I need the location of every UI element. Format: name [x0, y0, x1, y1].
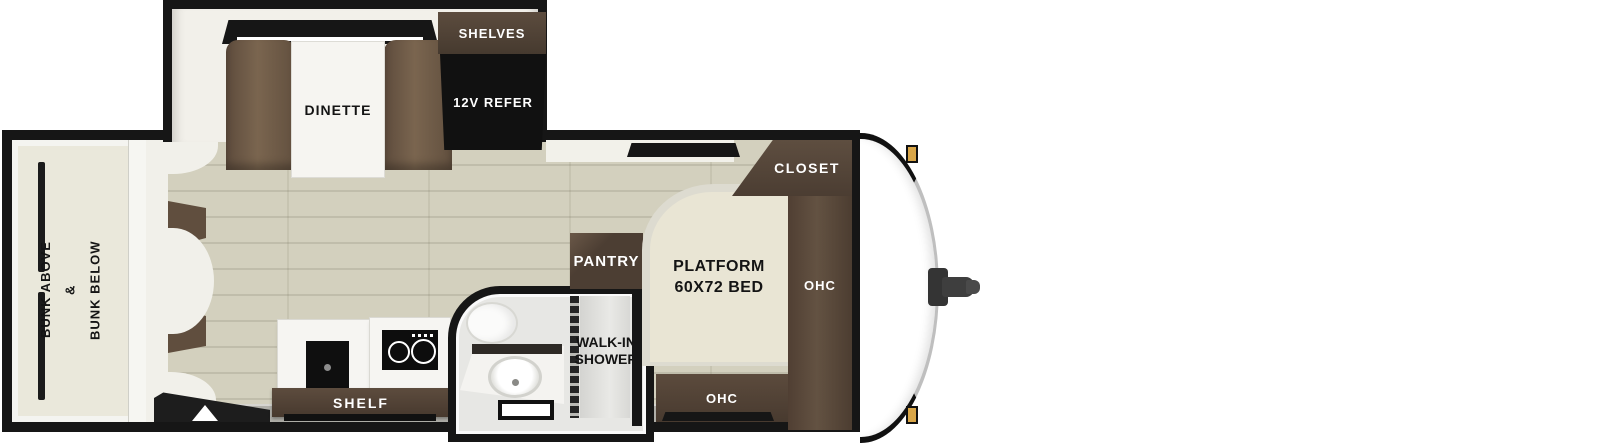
dinette-table: DINETTE [292, 42, 384, 177]
ohc-side-label: OHC [788, 278, 852, 293]
ohc-side: OHC [788, 190, 852, 430]
cooktop-controls [412, 334, 434, 337]
dinette-bench-left [226, 40, 296, 170]
bed-foot-window [662, 412, 774, 421]
bed-platform: PLATFORM 60X72 BED [650, 192, 788, 362]
refrigerator: 12V REFER [440, 54, 546, 150]
bath-mat-inner [502, 404, 550, 416]
shelf-base [284, 414, 436, 421]
dinette-label: DINETTE [305, 102, 372, 118]
microwave [306, 341, 349, 393]
refer-label: 12V REFER [453, 95, 533, 110]
ohc-foot-label: OHC [706, 391, 738, 406]
sink [488, 356, 542, 398]
bedroom-top-window [627, 143, 740, 157]
pantry-label: PANTRY [574, 253, 640, 270]
shelf-label: SHELF [333, 395, 389, 411]
bed-label-line1: PLATFORM [673, 256, 765, 277]
marker-light-bottom [906, 406, 918, 424]
cooktop-burner [411, 339, 436, 364]
marker-light-top [906, 145, 918, 163]
sink-drain [512, 379, 519, 386]
cooktop-burner [388, 341, 410, 363]
closet-label: CLOSET [774, 160, 840, 176]
shelves-cabinet: SHELVES [438, 12, 546, 54]
bath-mat [498, 400, 554, 420]
pantry-cabinet: PANTRY [570, 233, 643, 289]
kitchen-shelf: SHELF [272, 388, 450, 417]
bed-label-line2: 60X72 BED [673, 277, 765, 298]
bed-label: PLATFORM 60X72 BED [673, 256, 765, 298]
vanity-backsplash [472, 344, 562, 354]
shelves-label: SHELVES [459, 26, 526, 41]
cooktop [382, 330, 438, 370]
microwave-knob [324, 364, 331, 371]
toilet [468, 304, 516, 342]
floorplan-canvas: BUNK ABOVE & BUNK BELOW DINETTE SHELVES … [0, 0, 1600, 443]
hitch-tip [966, 280, 980, 294]
